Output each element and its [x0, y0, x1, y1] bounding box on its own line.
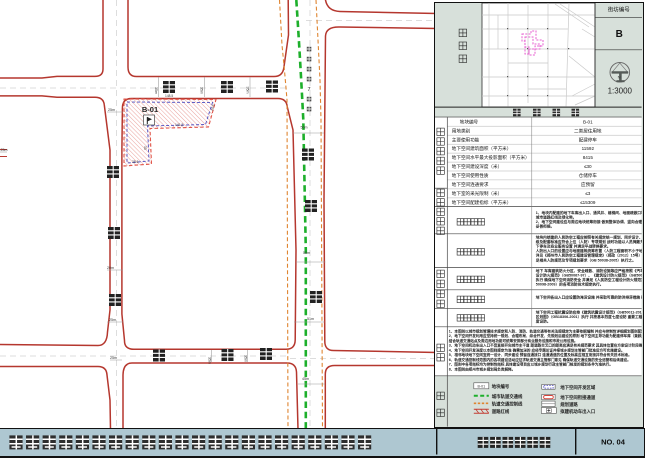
svg-text:配建停车: 配建停车 — [579, 136, 598, 143]
svg-text:详见《郑州市人民防空工程建设管理规定》（郑政〔2012〕15: 详见《郑州市人民防空工程建设管理规定》（郑政〔2012〕15号）有关条文规定 同… — [536, 253, 642, 258]
svg-text:35: 35 — [143, 146, 147, 150]
svg-text:地下空间使用性质: 地下空间使用性质 — [452, 172, 489, 179]
svg-text:35m: 35m — [208, 357, 212, 364]
svg-text:用地类别: 用地类别 — [452, 127, 471, 134]
svg-text:轨道交通控制线: 轨道交通控制线 — [492, 400, 523, 407]
svg-text:拟建机动车出入口: 拟建机动车出入口 — [560, 408, 595, 415]
svg-text:7、图则中各项指标均为控制性指标 具体建设项目应以城乡规划行: 7、图则中各项指标均为控制性指标 具体建设项目应以城乡规划行政主管部门核发的规划… — [449, 362, 613, 367]
svg-text:街坊编号: 街坊编号 — [608, 5, 630, 13]
svg-text:B: B — [616, 29, 623, 40]
svg-text:二类居住用地: 二类居住用地 — [574, 127, 602, 134]
svg-text:地块编号: 地块编号 — [492, 383, 510, 390]
svg-text:城市道路红线及绿化带。: 城市道路红线及绿化带。 — [536, 214, 577, 219]
svg-text:2、地下空间建设应与周边地块统筹衔接 做到整体协调、竖向合理: 2、地下空间建设应与周边地块统筹衔接 做到整体协调、竖向合理 并与轨道交通设施 — [536, 219, 642, 224]
svg-text:地下空间开发区域: 地下空间开发区域 — [560, 384, 596, 391]
svg-text:B-01: B-01 — [478, 384, 486, 388]
svg-text:8415: 8415 — [583, 155, 594, 160]
svg-text:≤3: ≤3 — [585, 191, 591, 196]
svg-text:下停车及商业服务设置 并满足平战转换要求。: 下停车及商业服务设置 并满足平战转换要求。 — [536, 243, 611, 248]
svg-text:主要使用功能: 主要使用功能 — [452, 136, 480, 143]
svg-text:25.5: 25.5 — [132, 160, 139, 164]
svg-text:地下空间建筑面积（平方米）: 地下空间建筑面积（平方米） — [452, 145, 512, 152]
svg-text:道路红线: 道路红线 — [492, 408, 510, 415]
svg-text:1、地块内配建的地下车库出入口、通风井、楼梯间、地面疏散口等: 1、地块内配建的地下车库出入口、通风井、楼梯间、地面疏散口等附属设施 不得占压 — [536, 210, 642, 215]
svg-text:141.2: 141.2 — [175, 123, 183, 127]
svg-text:地下空间配建指标（平方米）: 地下空间配建指标（平方米） — [452, 199, 512, 206]
svg-text:度设防。: 度设防。 — [536, 318, 551, 323]
svg-text:规划道路: 规划道路 — [560, 401, 578, 408]
svg-text:11592: 11592 — [582, 146, 595, 151]
svg-text:8、本图则由郑州市城乡规划局负责解释。: 8、本图则由郑州市城乡规划局负责解释。 — [449, 366, 515, 371]
svg-text:2、地下空间开发利用应坚持统一规划、合理布局、综合开发、先规: 2、地下空间开发利用应坚持统一规划、合理布局、综合开发、先规划后建设的原则 地下… — [449, 333, 642, 338]
svg-text:≤15309: ≤15309 — [580, 200, 596, 205]
svg-text:1:3000: 1:3000 — [608, 86, 633, 95]
svg-text:NO. 04: NO. 04 — [601, 438, 626, 447]
svg-text:妥善衔接。: 妥善衔接。 — [536, 224, 554, 229]
svg-text:执行 确保地下空间消防安全 并满足《人民防空工程设计防火规范: 执行 确保地下空间消防安全 并满足《人民防空工程设计防火规范》（GB — [536, 277, 642, 282]
svg-text:20m: 20m — [107, 266, 114, 270]
svg-text:地块内结建的人民防空工程应按照有关规定统一规划、同步设计、同: 地块内结建的人民防空工程应按照有关规定统一规划、同步设计、同步施工 其防护等 — [536, 234, 642, 239]
svg-text:25m: 25m — [109, 318, 116, 322]
svg-text:地下空间连通要求: 地下空间连通要求 — [452, 181, 489, 188]
svg-text:地下 车库建筑防火分区、安全疏散、消防设施等应严格按照《汽车: 地下 车库建筑防火分区、安全疏散、消防设施等应严格按照《汽车库、修车库、停车场 — [536, 268, 642, 273]
svg-text:地下空间水平最大投影面积（平方米）: 地下空间水平最大投影面积（平方米） — [452, 154, 530, 161]
svg-text:地下空间建设深度（米）: 地下空间建设深度（米） — [452, 163, 502, 170]
svg-text:148.5: 148.5 — [165, 94, 173, 98]
svg-text:5、相邻地块地下空间宜统一设计、同步建设 预留连通接口 连通: 5、相邻地块地下空间宜统一设计、同步建设 预留连通接口 连通通道的位置及标高应相… — [449, 352, 632, 357]
svg-text:地下室的采光限制（米）: 地下室的采光限制（米） — [452, 190, 502, 197]
svg-text:51m: 51m — [307, 317, 314, 321]
svg-text:1、本图则以城市规划管理技术规定和人防、消防、轨道交通等有关: 1、本图则以城市规划管理技术规定和人防、消防、轨道交通等有关法规规定为主要依据编… — [449, 328, 642, 333]
svg-text:结合轨道交通站点及周边用地功能可统筹安排部分商业服务设施和市: 结合轨道交通站点及周边用地功能可统筹安排部分商业服务设施和市政公用设施。 — [448, 338, 578, 343]
svg-text:设计防火规范》（GB50067-97）、《建筑设计防火规范》: 设计防火规范》（GB50067-97）、《建筑设计防火规范》（GB50016-2… — [536, 272, 642, 277]
svg-text:地下空间各出入口应设置防淹没设施 并采取可靠的防洪排涝措施: 地下空间各出入口应设置防淹没设施 并采取可靠的防洪排涝措施 确保地下空间防洪安全… — [536, 294, 642, 299]
svg-text:4、地下空间开发深度以本图则规定为准 确需加深的 应经专题论: 4、地下空间开发深度以本图则规定为准 确需加深的 应经专题论证并报城乡规划主管部… — [449, 347, 625, 352]
svg-text:地块编号: 地块编号 — [460, 118, 479, 125]
svg-text:45m: 45m — [302, 377, 309, 381]
svg-text:25m: 25m — [108, 108, 115, 112]
svg-text:50m: 50m — [303, 251, 310, 255]
svg-text:≤30: ≤30 — [584, 164, 592, 169]
svg-text:7: 7 — [307, 87, 310, 93]
svg-text:仓储停车: 仓储停车 — [579, 172, 598, 179]
svg-text:29.5: 29.5 — [210, 104, 216, 111]
svg-text:35m: 35m — [244, 355, 248, 362]
svg-text:级及配套标准应符合上位（人防）专项规划 战时功能以人员掩蔽为: 级及配套标准应符合上位（人防）专项规划 战时功能以人员掩蔽为主 平时功能结合地 — [536, 239, 642, 244]
svg-text:B-01: B-01 — [583, 119, 593, 124]
svg-text:人防出入口的设置应与地面建筑统筹布置（人防工程面积不小于地下: 人防出入口的设置应与地面建筑统筹布置（人防工程面积不小于地下室建筑面积 5%） — [536, 248, 642, 253]
svg-text:35m: 35m — [246, 87, 250, 94]
svg-text:地下空间工程抗震设防应按《建筑抗震设计规范》（GB50011: 地下空间工程抗震设防应按《建筑抗震设计规范》（GB50011-2010）和《中国… — [536, 309, 642, 314]
svg-text:B-01: B-01 — [142, 105, 158, 114]
svg-text:50m: 50m — [301, 126, 308, 130]
svg-text:3、地下空间机动车出入口不宜直接开向城市主干道 距道路交叉口: 3、地下空间机动车出入口不宜直接开向城市主干道 距道路交叉口的距离应满足有关规范… — [449, 343, 642, 348]
svg-text:足相关人防规范及专项规划要求（GB 50038-2005）执: 足相关人防规范及专项规划要求（GB 50038-2005）执行之。 — [536, 257, 636, 262]
svg-text:35m: 35m — [200, 87, 204, 94]
svg-text:25m: 25m — [110, 356, 117, 360]
svg-text:50098-2009）的各项消防技术规定执行。: 50098-2009）的各项消防技术规定执行。 — [536, 282, 604, 287]
svg-text:区划图》（GB18306-2001）执行 并按基本烈度七度设: 区划图》（GB18306-2001）执行 并按基本烈度七度设防 重要工程及生命线… — [536, 314, 642, 319]
svg-text:6、轨道交通控制线范围内的各项建设活动应征求轨道交通主管部门: 6、轨道交通控制线范围内的各项建设活动应征求轨道交通主管部门意见 确保轨道交通设… — [449, 357, 631, 362]
svg-text:N: N — [618, 74, 621, 79]
svg-text:地下空间衔接通道: 地下空间衔接通道 — [560, 394, 596, 401]
svg-text:25m: 25m — [1, 148, 8, 152]
svg-text:城市轨道交通线: 城市轨道交通线 — [492, 393, 523, 400]
svg-text:35m: 35m — [154, 87, 158, 94]
svg-text:应预留: 应预留 — [581, 181, 595, 188]
